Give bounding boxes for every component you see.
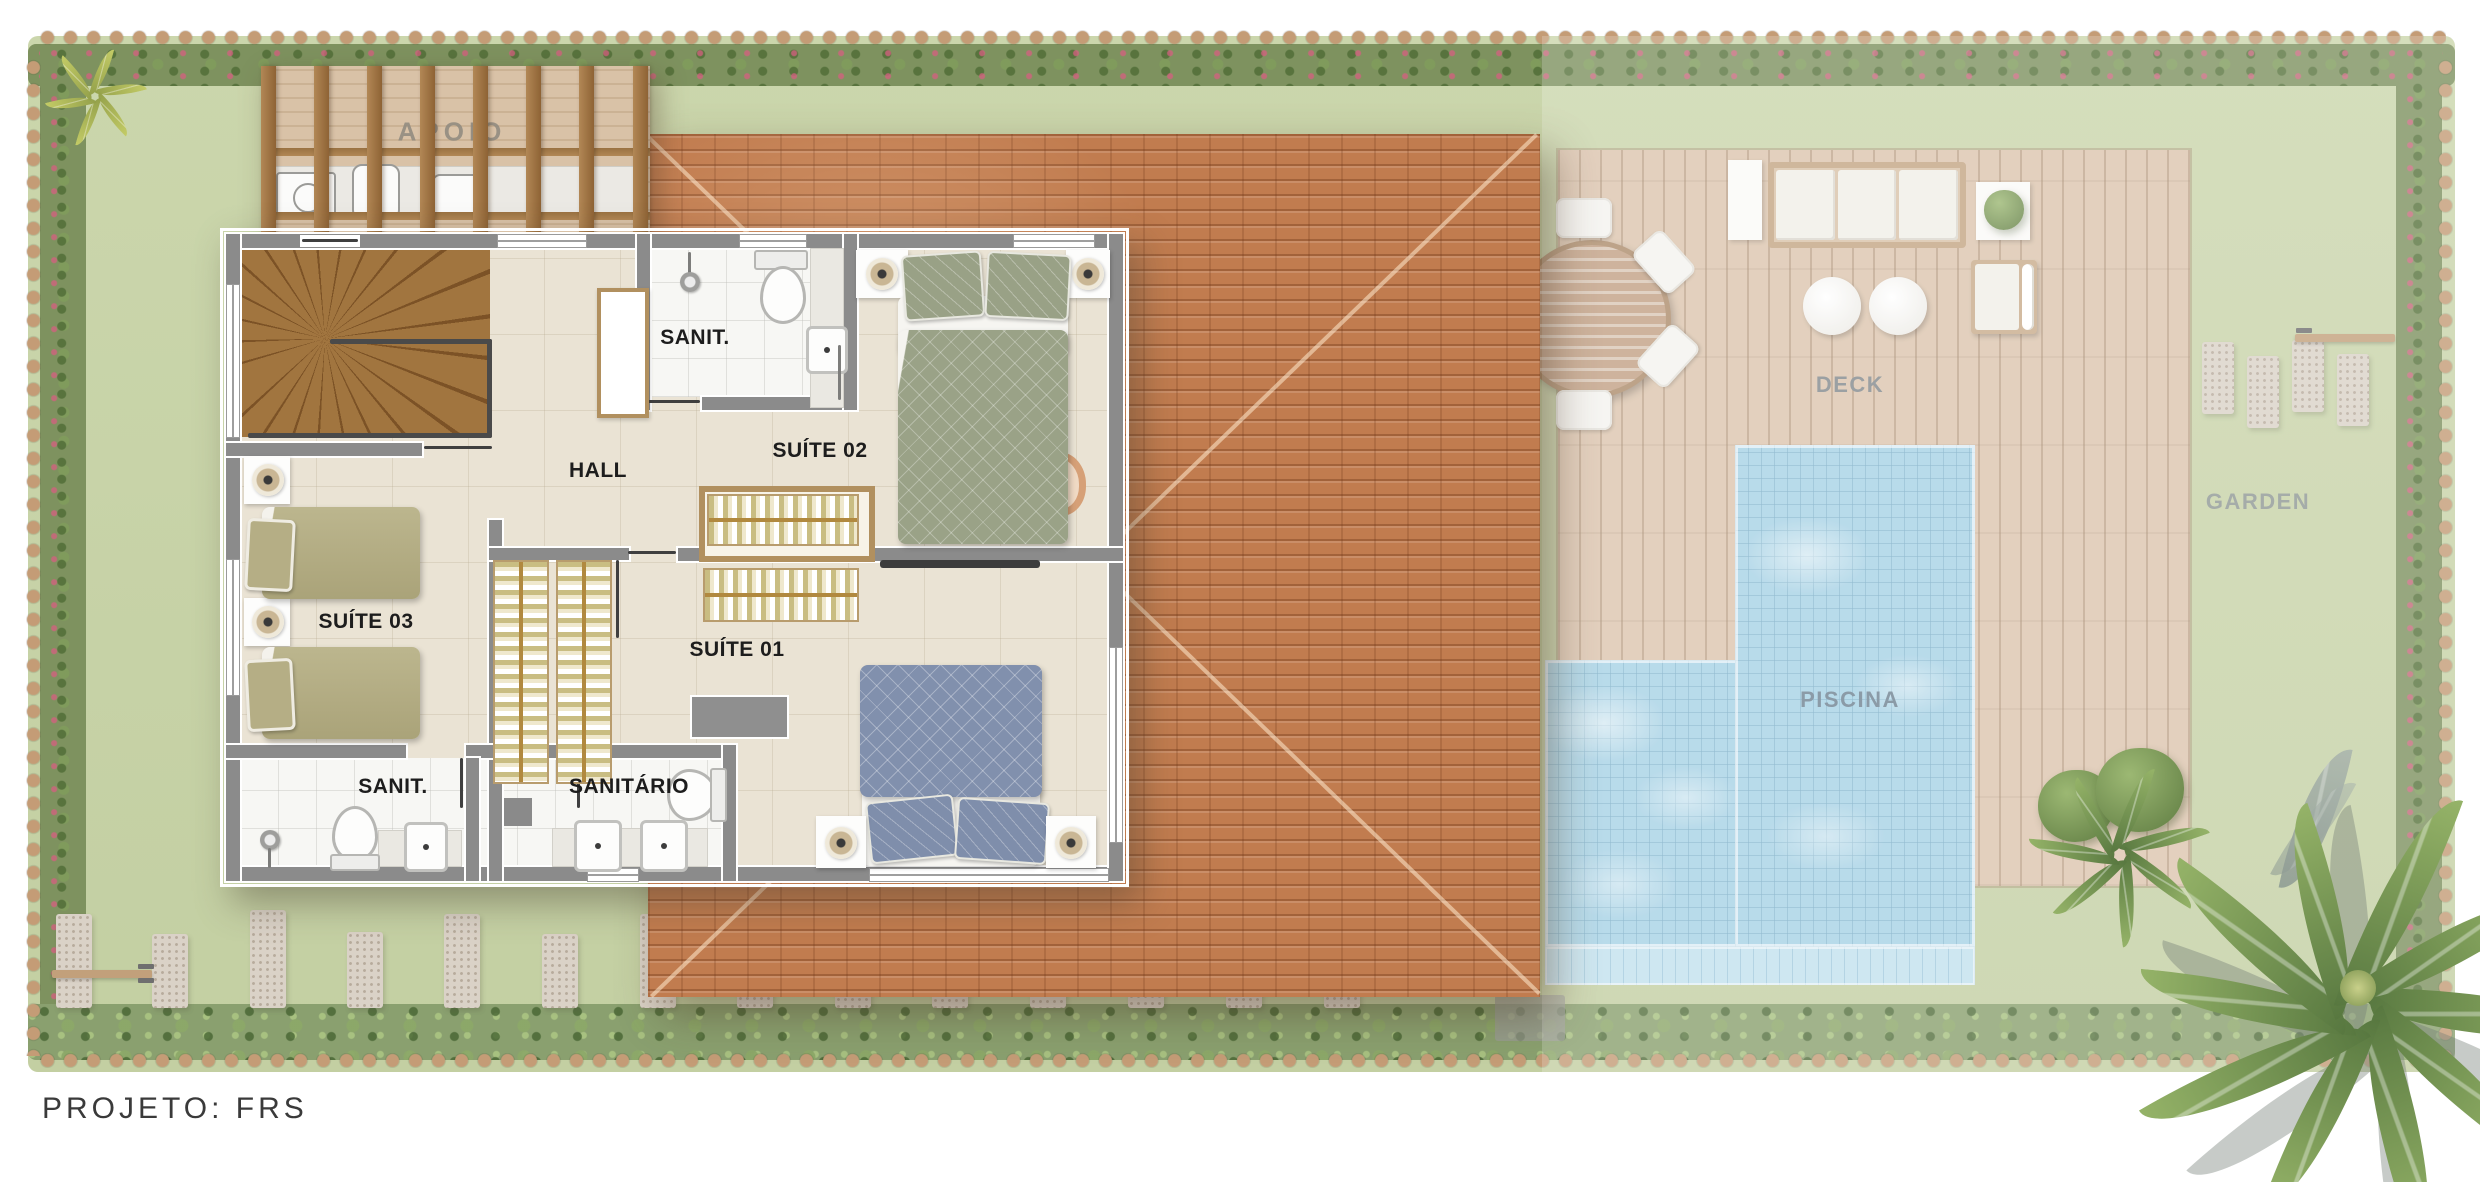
- sink: [806, 326, 848, 374]
- table-lamp: [1055, 827, 1087, 859]
- door-leaf: [460, 758, 463, 808]
- sink: [404, 822, 448, 872]
- hedge-left: [40, 44, 86, 1014]
- shower-head-icon: [260, 830, 280, 850]
- pillow: [954, 797, 1050, 865]
- post-col-left: [26, 56, 41, 1056]
- gate-left: [52, 970, 152, 978]
- pergola-beam: [261, 66, 276, 237]
- bed-suite02: [898, 330, 1068, 544]
- room-label-suite02: SUÍTE 02: [772, 439, 867, 463]
- door-leaf: [424, 446, 492, 449]
- pillow: [901, 250, 985, 321]
- table-lamp: [825, 827, 857, 859]
- pergola-beam: [367, 66, 382, 237]
- project-label: PROJETO: FRS: [42, 1092, 308, 1126]
- stair-railing: [330, 339, 492, 344]
- toilet-tank: [330, 854, 380, 871]
- window: [870, 869, 1108, 881]
- window: [227, 285, 239, 437]
- wall-baths-top-a: [226, 745, 406, 758]
- stepping-stone: [152, 934, 188, 1008]
- dresser: [692, 697, 787, 737]
- room-label-sanit-bottom: SANIT.: [358, 775, 428, 799]
- sink: [574, 820, 622, 872]
- table-lamp: [252, 606, 284, 638]
- stair-railing: [487, 339, 492, 438]
- stepping-stone: [444, 914, 480, 1008]
- room-label-sanitario: SANITÁRIO: [569, 775, 689, 799]
- toilet: [760, 266, 806, 324]
- stepping-stone: [542, 934, 578, 1008]
- room-label-sanit-top: SANIT.: [660, 326, 730, 350]
- stepping-stone: [347, 932, 383, 1008]
- table-lamp: [866, 258, 898, 290]
- wall-baths-divider: [466, 758, 479, 881]
- pergola-beam: [314, 66, 329, 237]
- pergola-beam: [473, 66, 488, 237]
- pillow: [865, 794, 959, 865]
- door-leaf: [648, 400, 700, 403]
- closet-rack-vertical: [493, 560, 549, 784]
- closet-rack-horizontal: [707, 494, 859, 546]
- pergola-beam: [579, 66, 594, 237]
- pergola-beam: [420, 66, 435, 237]
- gate-left-latch: [138, 964, 154, 969]
- exterior-wall-top: [226, 234, 1123, 248]
- gate-left-latch: [138, 978, 154, 983]
- closet-rack-vertical: [556, 560, 612, 784]
- tall-cabinet: [597, 288, 649, 418]
- sink: [640, 820, 688, 872]
- site-plan: DECK PISCINA GARDEN APOIO: [0, 0, 2480, 1182]
- shower-arm: [268, 848, 271, 868]
- wall-closet-top: [489, 548, 629, 560]
- palm-crown: [2340, 970, 2376, 1006]
- grab-bar: [838, 345, 841, 400]
- stepping-stone: [250, 910, 286, 1008]
- toilet-tank: [710, 768, 727, 822]
- bed-suite01: [860, 665, 1042, 797]
- room-label-hall: HALL: [569, 459, 627, 483]
- door-leaf: [616, 560, 619, 638]
- door-leaf: [628, 551, 676, 554]
- shower-drain: [504, 798, 532, 826]
- pergola-beam: [633, 66, 648, 237]
- shower-head-icon: [680, 272, 700, 292]
- wall-suite03-top: [226, 443, 422, 456]
- pillow: [984, 251, 1071, 321]
- stair-railing: [248, 433, 492, 438]
- table-lamp: [252, 464, 284, 496]
- pergola-beam: [526, 66, 541, 237]
- window: [1110, 648, 1122, 842]
- window: [1014, 235, 1094, 247]
- room-label-suite03: SUÍTE 03: [318, 610, 413, 634]
- stepping-stone: [56, 914, 92, 1008]
- door-leaf: [302, 239, 358, 242]
- pillow: [244, 518, 296, 592]
- table-lamp: [1072, 258, 1104, 290]
- window: [740, 235, 806, 247]
- window: [227, 560, 239, 695]
- apoio-label: APOIO: [398, 117, 507, 148]
- window: [498, 235, 586, 247]
- pillow: [244, 658, 296, 732]
- closet-rack-horizontal: [703, 568, 859, 622]
- room-label-suite01: SUÍTE 01: [689, 638, 784, 662]
- tv-console: [880, 560, 1040, 568]
